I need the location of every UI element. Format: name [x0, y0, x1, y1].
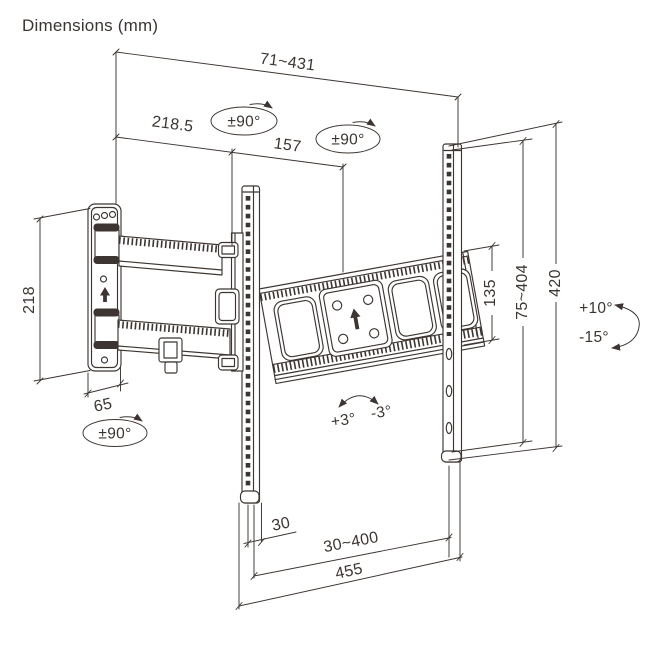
articulating-arms	[118, 236, 230, 373]
wall-plate-hole	[102, 213, 108, 219]
right-rail-slot	[446, 386, 451, 397]
dim-side-offset: 30	[270, 514, 292, 534]
page-title: Dimensions (mm)	[22, 16, 158, 35]
right-rail	[442, 144, 462, 462]
angle-swivel-front: ±90°	[331, 132, 364, 149]
dim-mount-height-range: 75~404	[514, 264, 531, 320]
angle-tilt-up: +10°	[579, 300, 613, 317]
wall-plate-hole	[94, 214, 100, 220]
angle-level-ccw: -3°	[370, 403, 393, 423]
upper-hinge-band	[94, 224, 120, 232]
dim-plate-width: 65	[92, 395, 114, 415]
dim-arm-rear: 218.5	[151, 113, 194, 135]
tv-mount-dimension-diagram: Dimensions (mm) 71~431 218.5 157 218 65 …	[0, 0, 660, 660]
angle-swivel-rear: ±90°	[227, 114, 260, 131]
angle-tilt-down: -15°	[579, 329, 609, 346]
dim-arm-front: 157	[273, 135, 303, 156]
wall-plate-hole	[110, 212, 116, 218]
level-hole	[101, 276, 107, 282]
left-rail-bottom-cap	[241, 491, 260, 503]
dim-depth-range: 71~431	[259, 50, 316, 74]
upper-hinge-knuckle	[95, 230, 119, 258]
right-rail-slot	[446, 349, 451, 360]
wall-plate	[88, 204, 121, 371]
right-rail-body	[443, 144, 462, 462]
upper-hinge-band	[94, 256, 120, 264]
tilt-arrow-icon	[612, 305, 639, 348]
wall-plate-hole	[102, 357, 108, 363]
diagram-canvas: Dimensions (mm) 71~431 218.5 157 218 65 …	[0, 0, 660, 660]
left-rail-body	[242, 186, 260, 503]
lower-hinge-band	[94, 341, 120, 349]
angle-level-cw: +3°	[330, 410, 357, 430]
angle-swivel-wall: ±90°	[98, 426, 131, 443]
dim-bracket-height: 135	[482, 279, 499, 307]
cable-clip-tab	[165, 362, 177, 373]
right-rail-bottom-cap	[442, 451, 462, 462]
lower-hinge-band	[94, 309, 120, 317]
lower-hinge-knuckle	[95, 315, 119, 343]
right-rail-slot	[446, 423, 451, 434]
dim-plate-height: 218	[21, 286, 38, 314]
dim-hole-width-range: 30~400	[322, 529, 380, 556]
dim-rail-length: 420	[547, 269, 564, 297]
